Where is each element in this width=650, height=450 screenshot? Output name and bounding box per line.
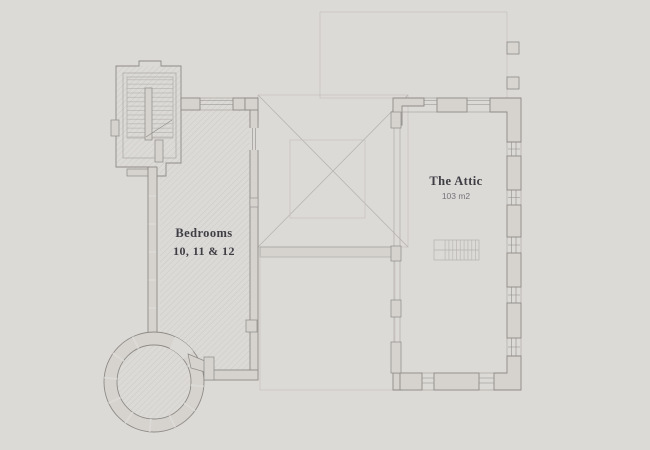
bedrooms-numbers-label: 10, 11 & 12 — [173, 244, 235, 258]
floor-plan-page: The Attic 103 m2 Bedrooms 10, 11 & 12 — [0, 0, 650, 450]
floor-plan-svg: The Attic 103 m2 Bedrooms 10, 11 & 12 — [0, 0, 650, 450]
bedrooms-room-label: Bedrooms — [175, 226, 232, 240]
attic-area-label: 103 m2 — [442, 191, 471, 201]
chimney-block — [507, 77, 519, 89]
background — [0, 0, 650, 450]
stairwell-window — [111, 120, 119, 136]
attic-room-label: The Attic — [429, 174, 482, 188]
chimney-block — [507, 42, 519, 54]
